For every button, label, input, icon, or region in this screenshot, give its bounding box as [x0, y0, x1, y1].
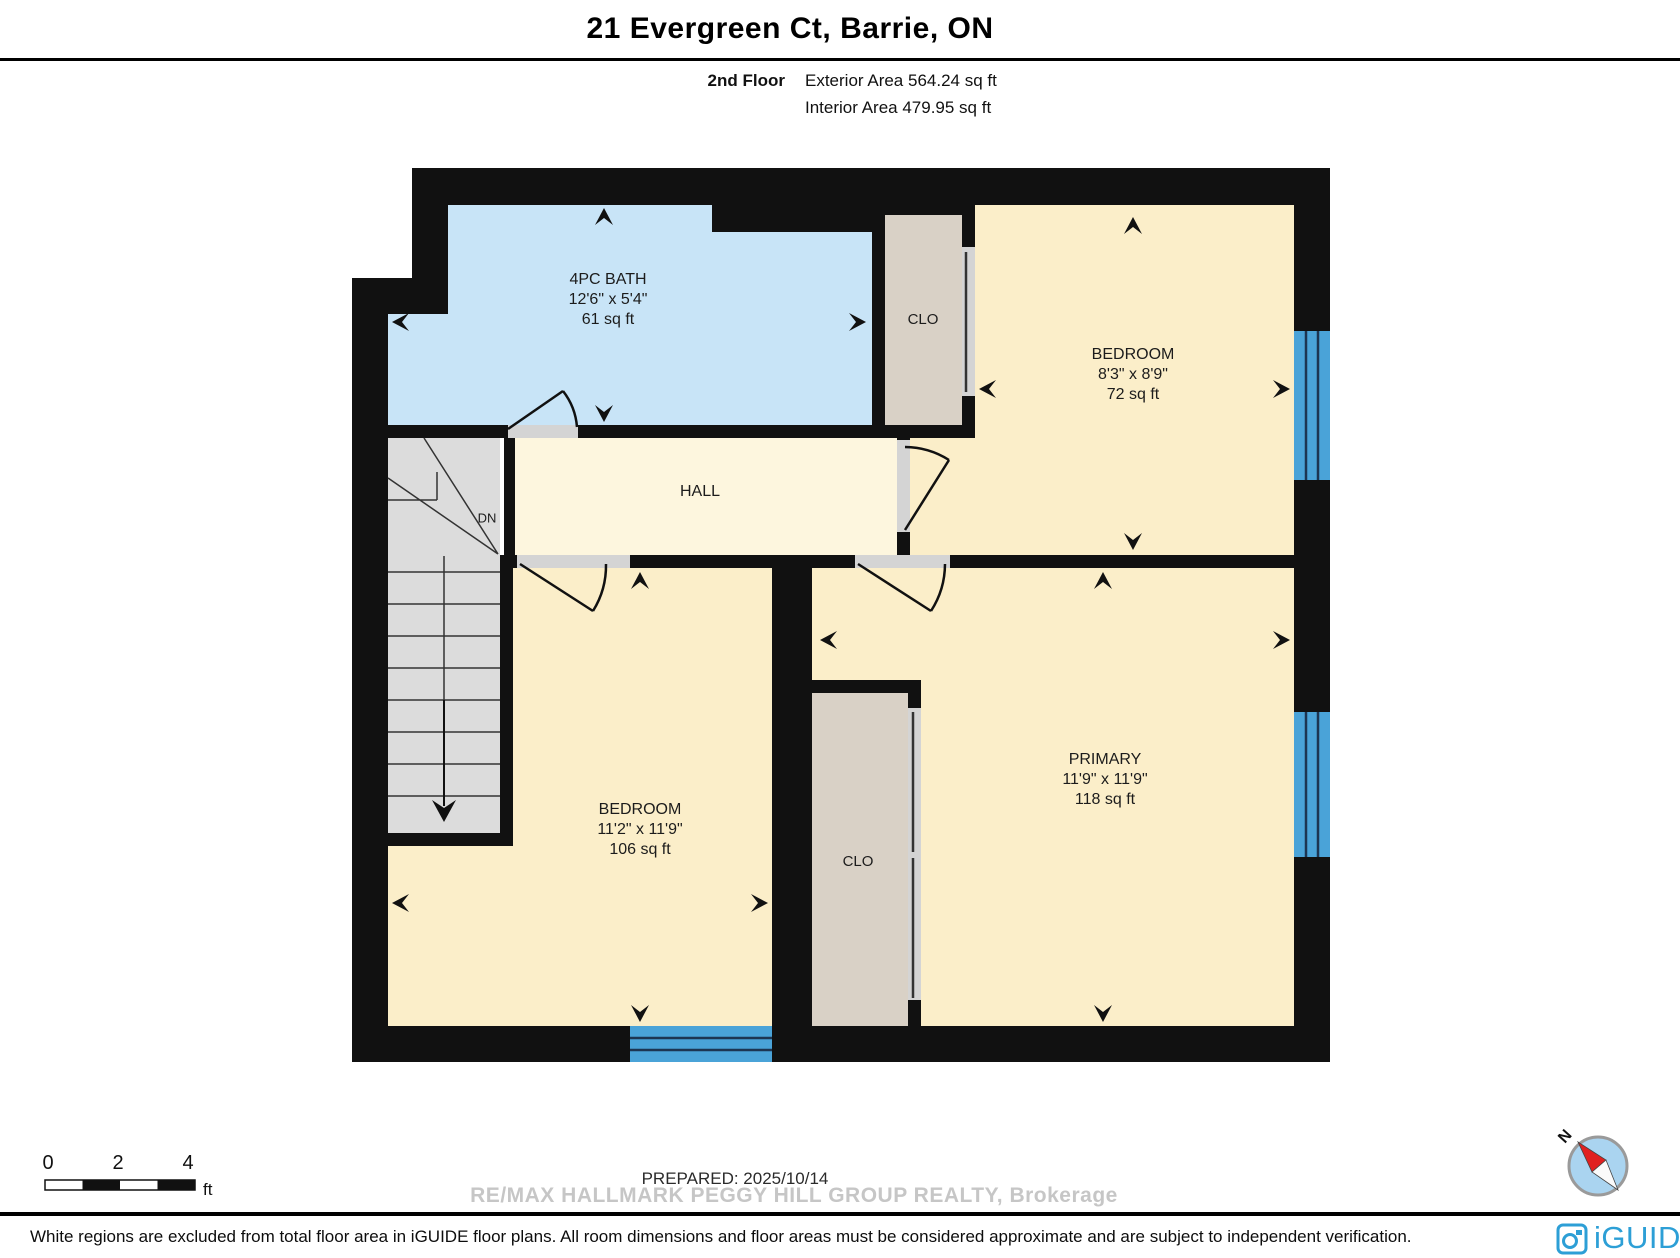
bedroom-bottom-area: 106 sq ft	[597, 840, 682, 860]
hall-label: HALL	[680, 482, 720, 502]
bedroom-top-name: BEDROOM	[1092, 345, 1175, 365]
bedroom-bottom-name: BEDROOM	[597, 800, 682, 820]
primary-area: 118 sq ft	[1062, 790, 1147, 810]
window-right-bottom	[1294, 712, 1330, 857]
bedroom-top-area: 72 sq ft	[1092, 385, 1175, 405]
primary-label: PRIMARY 11'9" x 11'9" 118 sq ft	[1062, 750, 1147, 810]
bedroom-top-label: BEDROOM 8'3" x 8'9" 72 sq ft	[1092, 345, 1175, 405]
closet-top-label: CLO	[908, 310, 939, 330]
window-right-top	[1294, 331, 1330, 480]
iguide-logo: iGUIDE	[1556, 1220, 1680, 1256]
room-floors	[388, 205, 1294, 1026]
prepared-date: PREPARED: 2025/10/14	[0, 1169, 1470, 1189]
floorplan-canvas	[0, 0, 1680, 1258]
hall-name: HALL	[680, 482, 720, 502]
disclaimer-text: White regions are excluded from total fl…	[30, 1227, 1412, 1247]
window-bottom	[630, 1026, 772, 1062]
bedroom-top-dimensions: 8'3" x 8'9"	[1092, 365, 1175, 385]
bath-area: 61 sq ft	[569, 310, 648, 330]
bath-dimensions: 12'6" x 5'4"	[569, 290, 648, 310]
primary-name: PRIMARY	[1062, 750, 1147, 770]
stairs-dn-label: DN	[478, 511, 497, 526]
bath-label: 4PC BATH 12'6" x 5'4" 61 sq ft	[569, 270, 648, 330]
iguide-logo-text: iGUIDE	[1594, 1220, 1680, 1256]
closet-top-name: CLO	[908, 310, 939, 330]
closet-bottom-label: CLO	[843, 852, 874, 872]
primary-dimensions: 11'9" x 11'9"	[1062, 770, 1147, 790]
closet-bottom-name: CLO	[843, 852, 874, 872]
bedroom-bottom-dimensions: 11'2" x 11'9"	[597, 820, 682, 840]
iguide-logo-icon	[1556, 1222, 1589, 1255]
footer-divider	[0, 1212, 1680, 1216]
bedroom-bottom-label: BEDROOM 11'2" x 11'9" 106 sq ft	[597, 800, 682, 860]
bath-name: 4PC BATH	[569, 270, 648, 290]
